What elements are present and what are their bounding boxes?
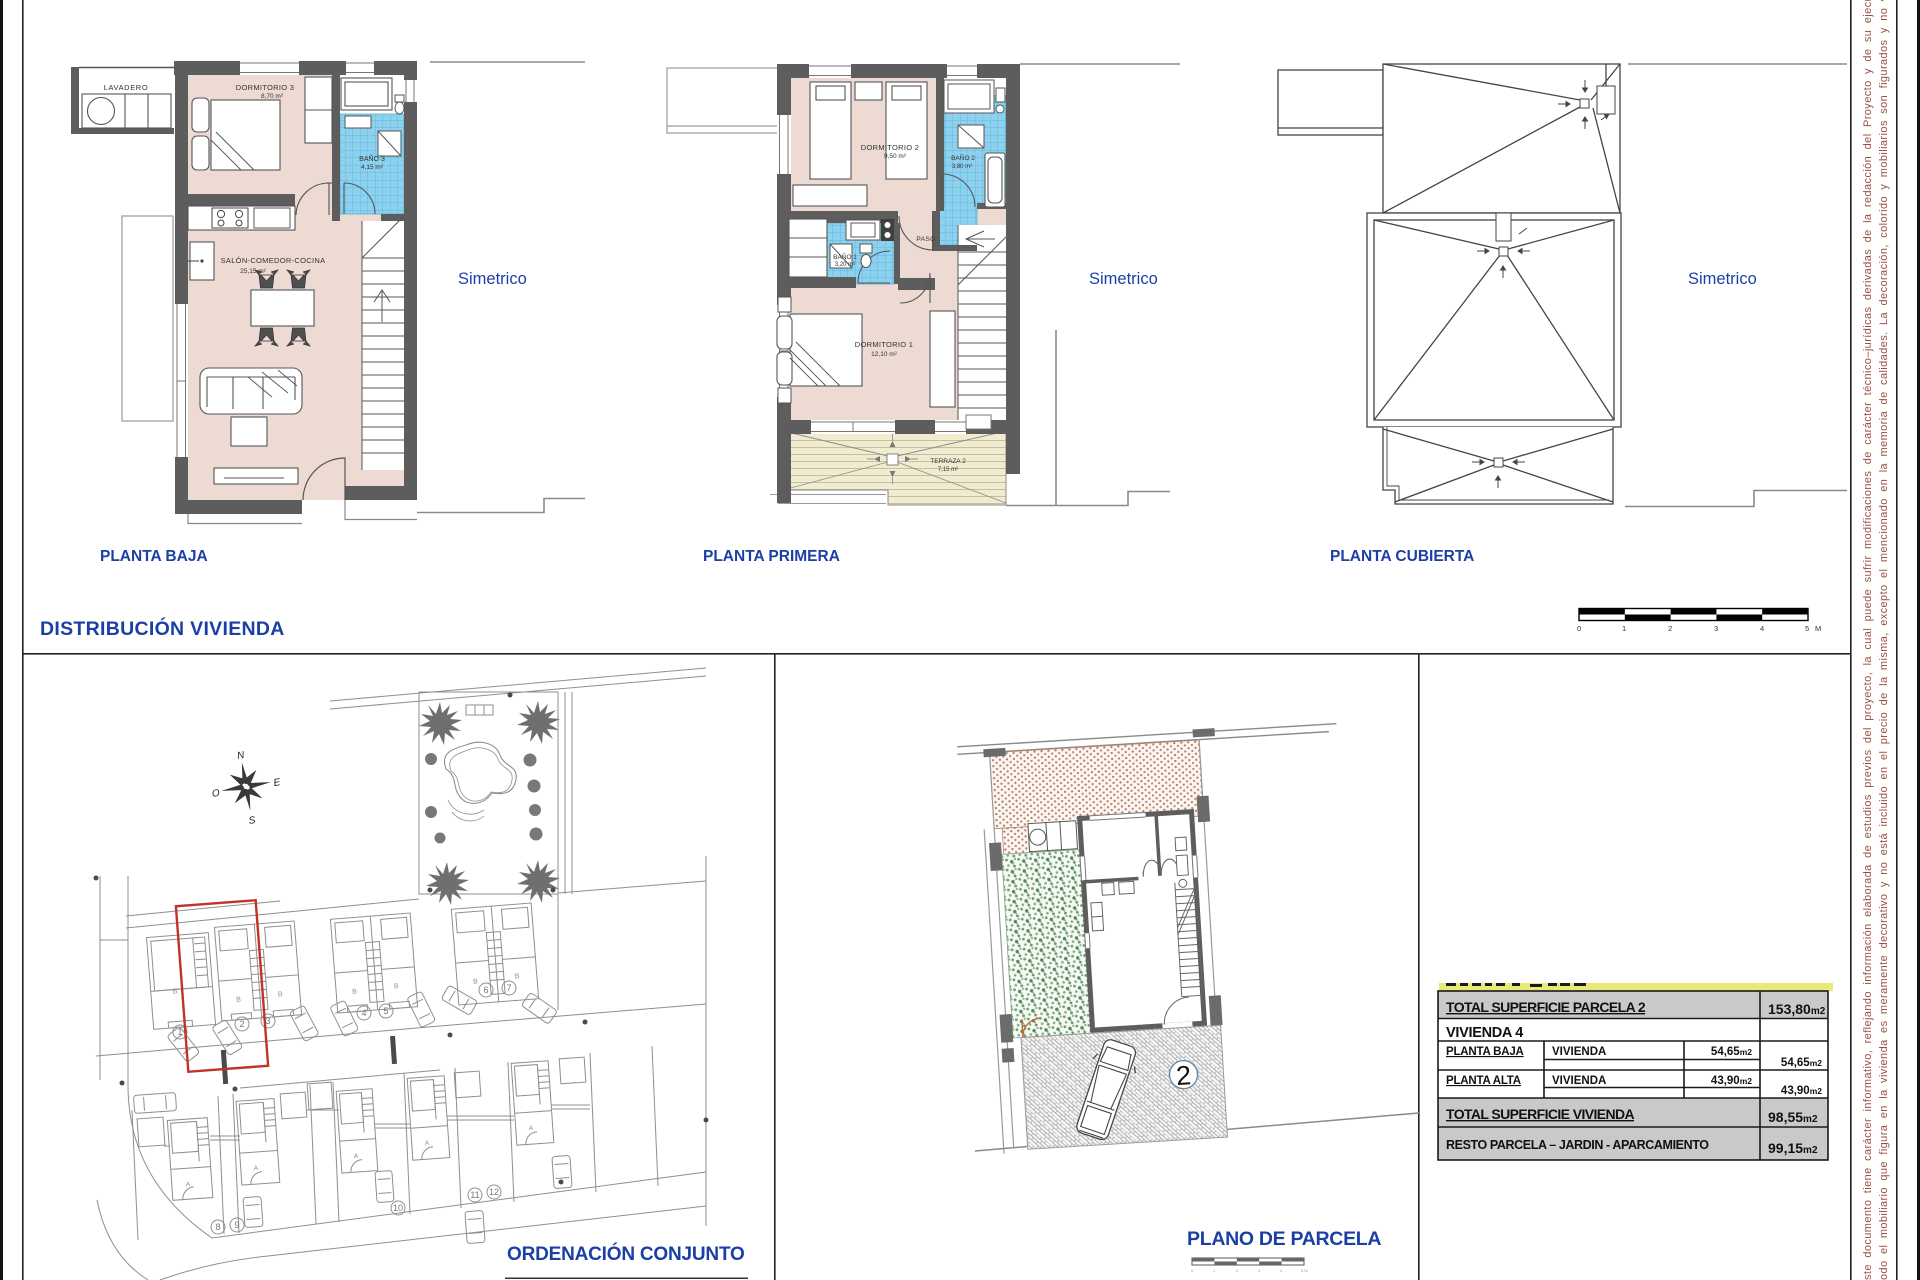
svg-text:ste documento tiene carácter i: ste documento tiene carácter informativo… bbox=[1862, 0, 1874, 1280]
svg-text:ORDENACIÓN CONJUNTO: ORDENACIÓN CONJUNTO bbox=[507, 1243, 745, 1265]
svg-text:4: 4 bbox=[1760, 624, 1764, 633]
svg-text:11: 11 bbox=[470, 1190, 479, 1200]
svg-text:54,65m2: 54,65m2 bbox=[1781, 1057, 1822, 1069]
svg-text:DORMITORIO 2: DORMITORIO 2 bbox=[861, 143, 919, 152]
svg-text:PLANO DE PARCELA: PLANO DE PARCELA bbox=[1187, 1228, 1381, 1250]
svg-text:3: 3 bbox=[265, 1016, 270, 1026]
svg-text:VIVIENDA: VIVIENDA bbox=[1552, 1075, 1606, 1087]
svg-text:DORMITORIO 1: DORMITORIO 1 bbox=[855, 340, 913, 349]
svg-text:9,50 m²: 9,50 m² bbox=[884, 153, 907, 160]
svg-text:BAÑO 1: BAÑO 1 bbox=[833, 252, 857, 261]
svg-text:4: 4 bbox=[361, 1008, 366, 1018]
svg-text:B: B bbox=[278, 991, 284, 998]
svg-text:43,90m2: 43,90m2 bbox=[1711, 1075, 1752, 1087]
svg-text:2: 2 bbox=[1175, 1060, 1192, 1091]
svg-text:Simetrico: Simetrico bbox=[458, 270, 527, 288]
svg-text:3,20 m²: 3,20 m² bbox=[835, 262, 855, 268]
svg-text:TERRAZA 2: TERRAZA 2 bbox=[930, 458, 966, 465]
svg-text:TOTAL SUPERFICIE PARCELA 2: TOTAL SUPERFICIE PARCELA 2 bbox=[1446, 999, 1646, 1015]
svg-text:SALÓN-COMEDOR-COCINA: SALÓN-COMEDOR-COCINA bbox=[221, 256, 326, 265]
svg-text:8,70 m²: 8,70 m² bbox=[261, 93, 284, 100]
svg-text:3,80 m²: 3,80 m² bbox=[952, 164, 972, 170]
svg-text:43,90m2: 43,90m2 bbox=[1781, 1085, 1822, 1097]
svg-text:RESTO PARCELA – JARDIN - APARC: RESTO PARCELA – JARDIN - APARCAMIENTO bbox=[1446, 1138, 1709, 1152]
svg-text:12: 12 bbox=[489, 1187, 499, 1197]
svg-text:B: B bbox=[394, 983, 400, 990]
svg-text:PASO: PASO bbox=[916, 236, 935, 243]
svg-text:PLANTA CUBIERTA: PLANTA CUBIERTA bbox=[1330, 548, 1474, 565]
svg-text:VIVIENDA 4: VIVIENDA 4 bbox=[1446, 1025, 1523, 1041]
svg-text:10: 10 bbox=[393, 1203, 403, 1213]
svg-text:TOTAL SUPERFICIE VIVIENDA: TOTAL SUPERFICIE VIVIENDA bbox=[1446, 1106, 1635, 1122]
svg-text:5: 5 bbox=[1805, 624, 1809, 633]
svg-text:B: B bbox=[352, 988, 358, 995]
svg-text:PLANTA BAJA: PLANTA BAJA bbox=[100, 548, 208, 565]
svg-text:BAÑO 2: BAÑO 2 bbox=[951, 153, 975, 162]
svg-text:DISTRIBUCIÓN VIVIENDA: DISTRIBUCIÓN VIVIENDA bbox=[40, 616, 285, 640]
svg-text:8: 8 bbox=[215, 1222, 220, 1232]
svg-text:Simetrico: Simetrico bbox=[1688, 270, 1757, 288]
svg-text:PLANTA BAJA: PLANTA BAJA bbox=[1446, 1046, 1524, 1058]
svg-text:B: B bbox=[236, 996, 242, 1003]
svg-text:3: 3 bbox=[1714, 624, 1718, 633]
svg-text:B: B bbox=[173, 988, 179, 995]
svg-text:odo el mobiliario que figura e: odo el mobiliario que figura en la vivie… bbox=[1878, 0, 1890, 1280]
svg-text:4,15 m²: 4,15 m² bbox=[361, 164, 384, 171]
svg-text:54,65m2: 54,65m2 bbox=[1711, 1046, 1752, 1058]
svg-text:9: 9 bbox=[234, 1220, 239, 1230]
svg-text:5: 5 bbox=[383, 1006, 388, 1016]
svg-text:Simetrico: Simetrico bbox=[1089, 270, 1158, 288]
svg-text:B: B bbox=[515, 973, 521, 980]
svg-text:PLANTA PRIMERA: PLANTA PRIMERA bbox=[703, 548, 840, 565]
svg-text:VIVIENDA: VIVIENDA bbox=[1552, 1046, 1606, 1058]
svg-text:M: M bbox=[1815, 624, 1821, 633]
svg-text:0: 0 bbox=[1577, 624, 1581, 633]
svg-text:PLANTA ALTA: PLANTA ALTA bbox=[1446, 1075, 1521, 1087]
svg-text:25,15 m²: 25,15 m² bbox=[240, 268, 266, 275]
svg-text:7: 7 bbox=[506, 983, 511, 993]
svg-text:7,15 m²: 7,15 m² bbox=[938, 467, 958, 473]
svg-text:6: 6 bbox=[483, 985, 488, 995]
svg-text:1: 1 bbox=[1622, 624, 1626, 633]
svg-text:LAVADERO: LAVADERO bbox=[104, 83, 149, 92]
svg-text:B: B bbox=[473, 978, 479, 985]
svg-text:2: 2 bbox=[1668, 624, 1672, 633]
svg-text:DORMITORIO 3: DORMITORIO 3 bbox=[236, 83, 294, 92]
svg-text:2: 2 bbox=[239, 1019, 244, 1029]
svg-text:BAÑO 3: BAÑO 3 bbox=[359, 154, 385, 163]
svg-text:5 M: 5 M bbox=[1301, 1268, 1308, 1273]
svg-text:12,10 m²: 12,10 m² bbox=[871, 351, 897, 358]
svg-text:1: 1 bbox=[177, 1027, 182, 1037]
